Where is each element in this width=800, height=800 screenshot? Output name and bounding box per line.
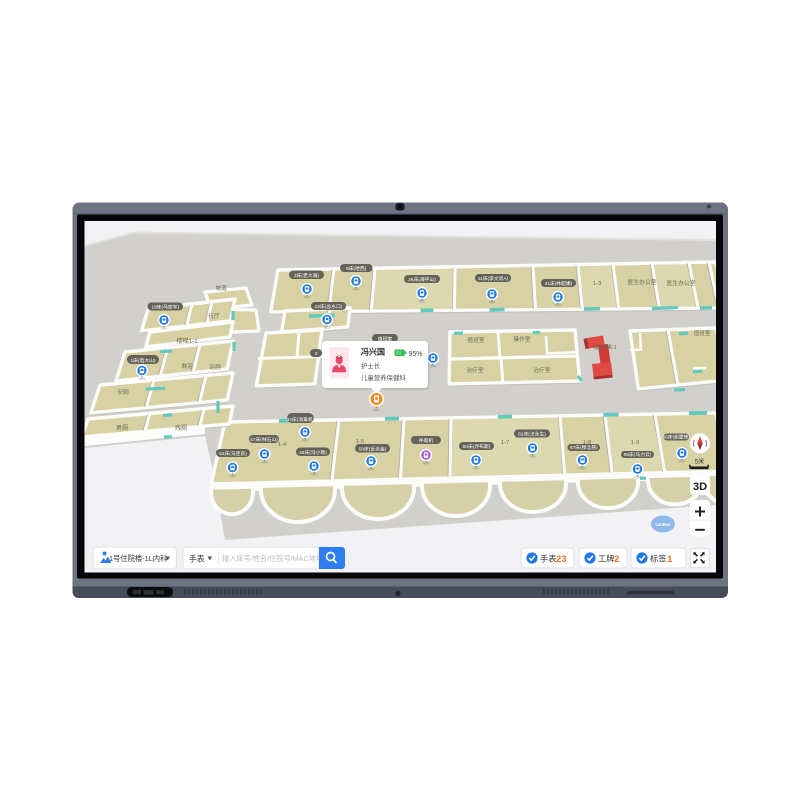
svg-text:53床(马连良): 53床(马连良) (219, 450, 247, 457)
svg-text:LanBox: LanBox (655, 522, 671, 527)
svg-text:护士长: 护士长 (361, 361, 381, 370)
svg-text:儿童营养保健科: 儿童营养保健科 (361, 373, 406, 382)
svg-text:呼吸机: 呼吸机 (419, 437, 434, 444)
svg-text:34床(消毒机): 34床(消毒机) (287, 416, 315, 423)
svg-text:医生办公室: 医生办公室 (628, 278, 657, 286)
svg-text:治疗室: 治疗室 (466, 366, 484, 374)
svg-text:手表: 手表 (189, 554, 205, 564)
svg-text:11床(李文双A): 11床(李文双A) (478, 275, 509, 282)
svg-text:行厅: 行厅 (208, 312, 220, 320)
svg-text:26床(海平山): 26床(海平山) (408, 276, 436, 283)
svg-text:标签: 标签 (650, 554, 666, 564)
svg-text:淋浴: 淋浴 (181, 362, 193, 370)
svg-text:男厕: 男厕 (116, 425, 128, 432)
svg-text:1号住院楼-1L内科: 1号住院楼-1L内科 (109, 554, 168, 563)
svg-text:1-3: 1-3 (593, 281, 601, 287)
svg-text:安厕: 安厕 (117, 388, 129, 396)
svg-text:3D: 3D (693, 481, 707, 493)
svg-text:65床(马力云): 65床(马力云) (624, 451, 652, 458)
svg-text:47床(林石山): 47床(林石山) (250, 436, 278, 443)
svg-text:治疗室: 治疗室 (533, 366, 551, 374)
svg-text:1床(电大山): 1床(电大山) (130, 357, 155, 364)
svg-text:9床(哈西): 9床(哈西) (346, 265, 367, 272)
svg-text:值班室: 值班室 (467, 336, 485, 344)
svg-text:48床(冯小刚): 48床(冯小刚) (299, 449, 327, 456)
svg-text:浴厕: 浴厕 (209, 363, 221, 371)
svg-text:23: 23 (556, 554, 567, 565)
svg-text:60床(乔布斯): 60床(乔布斯) (463, 443, 491, 450)
svg-text:66床(谢霆锋): 66床(谢霆锋) (662, 433, 690, 440)
svg-text:1: 1 (667, 554, 673, 565)
svg-text:楼-楼梯-1: 楼-楼梯-1 (593, 343, 617, 351)
svg-text:1-4: 1-4 (278, 442, 287, 448)
svg-text:62床(汪永生): 62床(汪永生) (518, 430, 546, 437)
svg-text:医生办公室: 医生办公室 (667, 279, 696, 287)
svg-text:工牌: 工牌 (598, 554, 614, 564)
svg-text:值班室: 值班室 (694, 329, 711, 337)
svg-text:1-7: 1-7 (501, 440, 509, 446)
svg-text:残厕: 残厕 (175, 424, 187, 432)
svg-text:67床(穆念慈): 67床(穆念慈) (570, 444, 598, 451)
svg-text:冯兴国: 冯兴国 (361, 347, 385, 357)
svg-text:95%: 95% (409, 351, 423, 358)
svg-text:22床(总水口): 22床(总水口) (315, 303, 343, 310)
svg-text:操作室: 操作室 (513, 335, 531, 343)
svg-text:1-9: 1-9 (631, 440, 639, 446)
svg-text:楼梯1-1: 楼梯1-1 (176, 337, 198, 345)
svg-text:输入床号/姓名/住院号/MAC地址: 输入床号/姓名/住院号/MAC地址 (222, 554, 323, 563)
svg-text:3: 3 (315, 351, 318, 357)
svg-text:手表: 手表 (540, 554, 556, 564)
svg-text:2: 2 (614, 554, 619, 565)
svg-text:19床(马宏宇): 19床(马宏宇) (151, 303, 179, 310)
svg-text:5米: 5米 (695, 458, 704, 466)
svg-text:31床(林超娜): 31床(林超娜) (545, 280, 573, 287)
svg-text:58床(反派金): 58床(反派金) (359, 445, 387, 452)
svg-text:坡道: 坡道 (215, 284, 227, 292)
svg-text:2床(老大海): 2床(老大海) (294, 272, 319, 279)
